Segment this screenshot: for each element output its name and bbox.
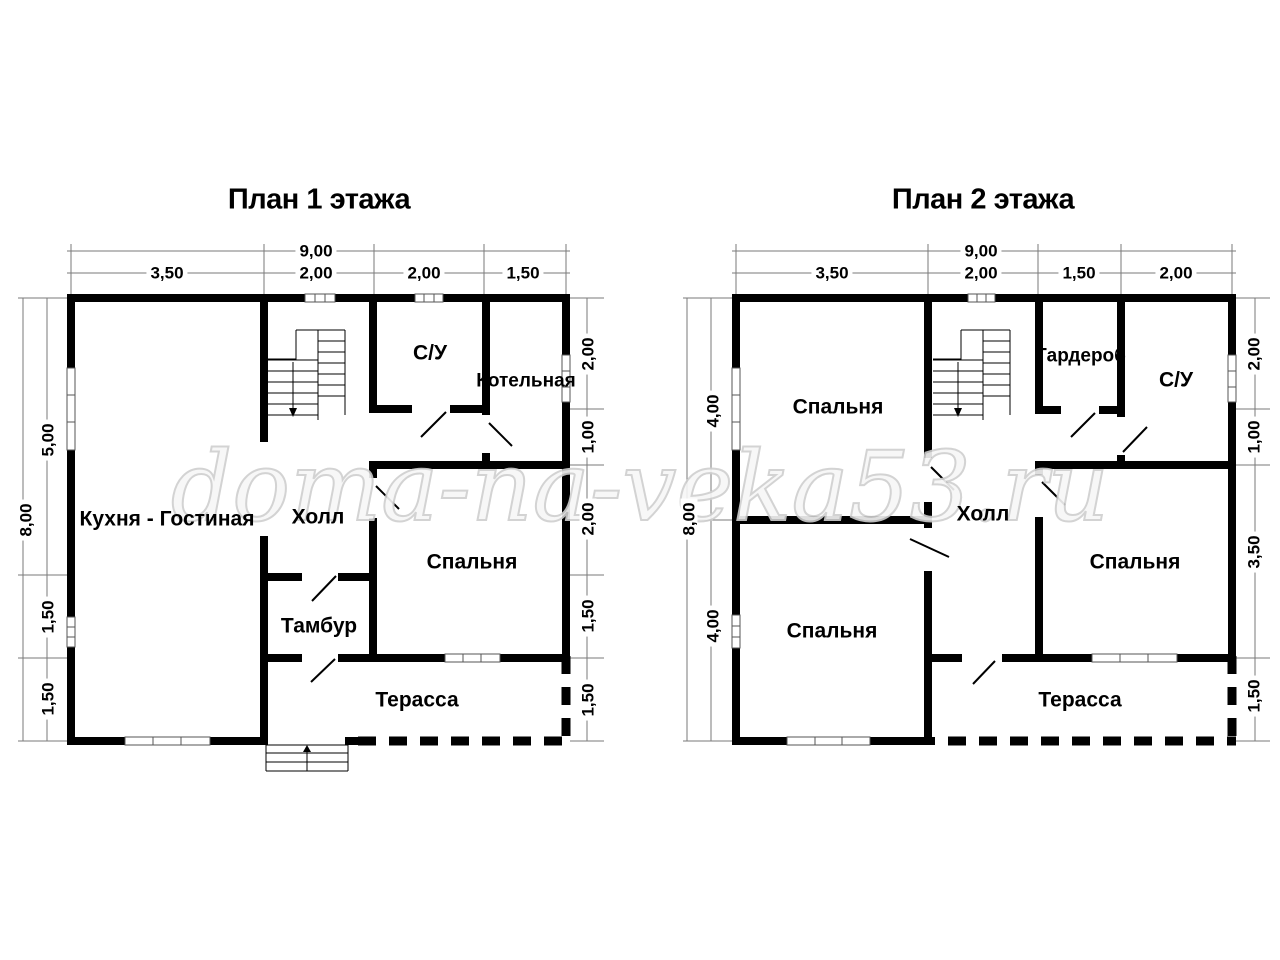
plan2-dim-top-4: 2,00: [1155, 265, 1196, 282]
plan1-dim-left-2: 1,50: [40, 596, 57, 637]
room-label-bedroom-right: Спальня: [1090, 552, 1181, 573]
plan1-dim-right-4: 1,50: [580, 595, 597, 636]
room-label-bedroom-top: Спальня: [793, 397, 884, 418]
plan2-dim-left-2: 4,00: [705, 605, 722, 646]
plan1-dim-right-1: 2,00: [580, 333, 597, 374]
room-label-terrace-1: Терасса: [375, 690, 458, 711]
floorplan-sheet: doma-na-veka53.ru План 1 этажа План 2 эт…: [0, 0, 1280, 960]
plan1-stairs: [268, 330, 345, 420]
plan2-dim-top-1: 3,50: [811, 265, 852, 282]
room-label-boiler: Котельная: [476, 372, 575, 391]
room-label-hall-2: Холл: [957, 504, 1010, 525]
room-label-vestibule: Тамбур: [281, 616, 357, 637]
room-label-bedroom-1: Спальня: [427, 552, 518, 573]
plan2-dim-right-3: 3,50: [1246, 531, 1263, 572]
room-label-kitchen-living: Кухня - Гостиная: [80, 509, 255, 530]
plan1-dim-right-5: 1,50: [580, 679, 597, 720]
plan1-dim-top-4: 1,50: [502, 265, 543, 282]
plan1-dim-right-3: 2,00: [580, 498, 597, 539]
plan2-dim-right-2: 1,00: [1246, 416, 1263, 457]
plan1-dim-top-1: 3,50: [146, 265, 187, 282]
plan1-dim-right-2: 1,00: [580, 416, 597, 457]
room-label-wardrobe: Гардероб: [1036, 347, 1126, 366]
stairs-down-arrow-1: [289, 362, 297, 417]
plan2-dim-total-height: 8,00: [681, 498, 698, 539]
room-label-hall-1: Холл: [292, 507, 345, 528]
plan2-dim-right-4: 1,50: [1246, 675, 1263, 716]
plan1-title: План 1 этажа: [228, 186, 410, 215]
plan2-dim-total-width: 9,00: [960, 243, 1001, 260]
plan1-dim-total-width: 9,00: [295, 243, 336, 260]
plan2-stairs: [933, 330, 1010, 420]
plan2-dim-left-1: 4,00: [705, 390, 722, 431]
room-label-bedroom-bottom: Спальня: [787, 621, 878, 642]
plan1-entrance-steps: [266, 745, 348, 771]
plan1-dim-top-3: 2,00: [403, 265, 444, 282]
plan1-dim-total-height: 8,00: [18, 499, 35, 540]
room-label-wc-1: С/У: [413, 343, 447, 364]
room-label-terrace-2: Терасса: [1038, 690, 1121, 711]
plan2-dim-top-2: 2,00: [960, 265, 1001, 282]
plan1-dim-top-2: 2,00: [295, 265, 336, 282]
plan1-dim-left-1: 5,00: [40, 419, 57, 460]
plan1-dim-left-3: 1,50: [40, 678, 57, 719]
plan2-dim-right-1: 2,00: [1246, 333, 1263, 374]
room-label-wc-2: С/У: [1159, 370, 1193, 391]
steps-up-arrow: [303, 745, 311, 771]
stairs-down-arrow-2: [954, 362, 962, 417]
plan2-title: План 2 этажа: [892, 186, 1074, 215]
plan2-dim-top-3: 1,50: [1058, 265, 1099, 282]
